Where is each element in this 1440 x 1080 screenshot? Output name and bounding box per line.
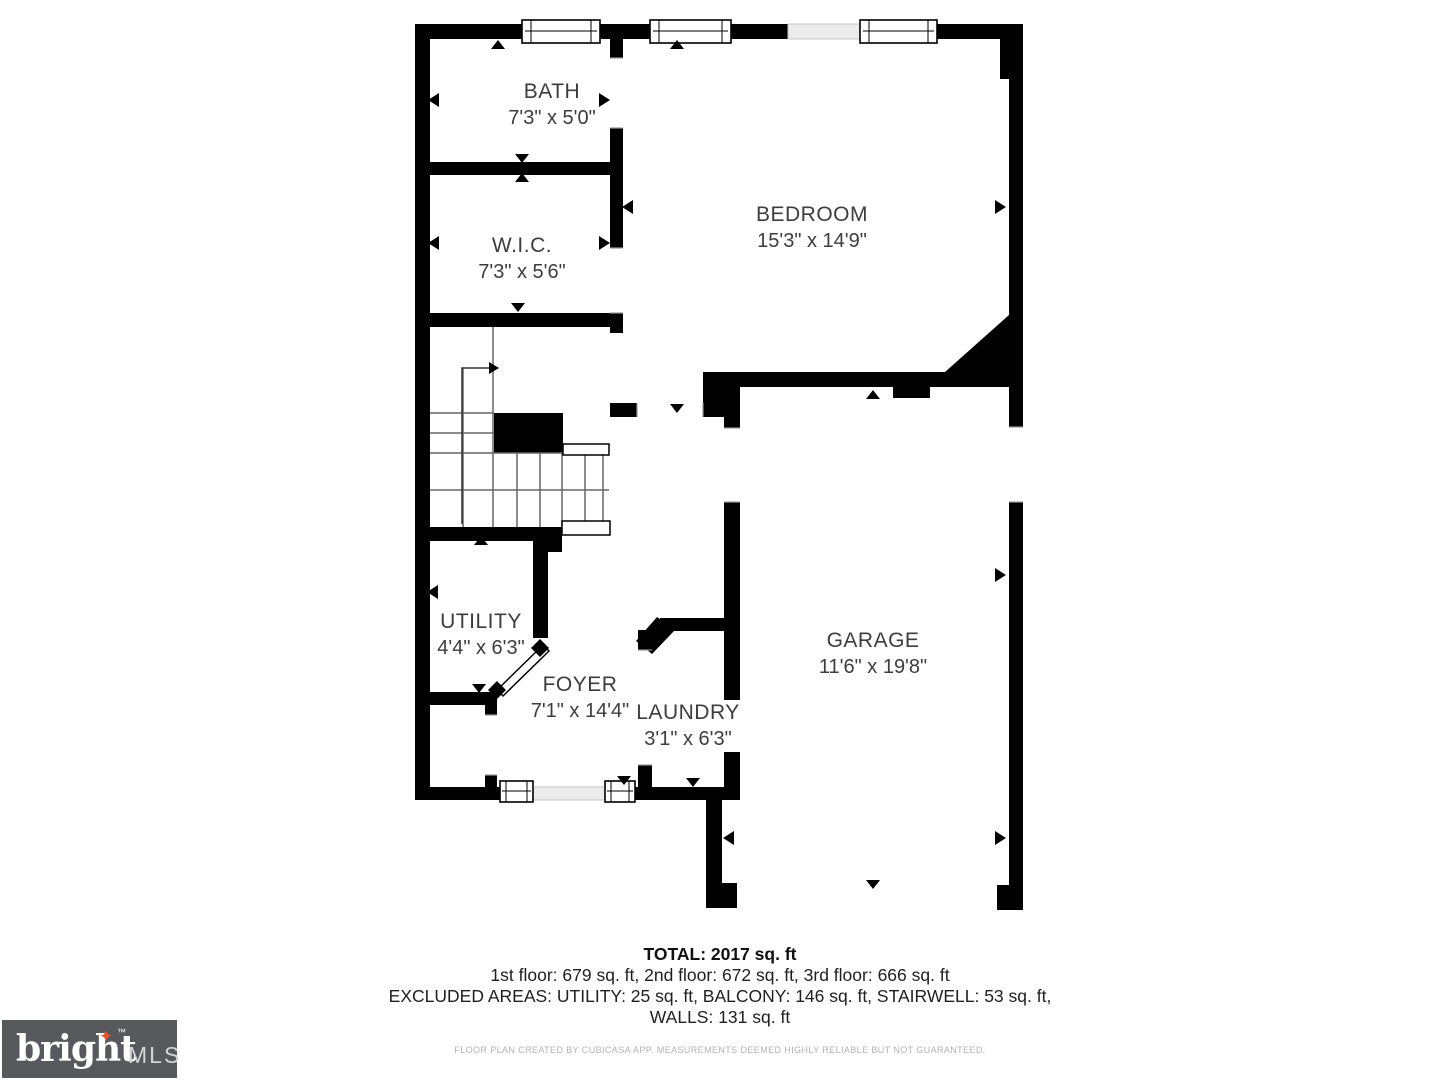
window (605, 781, 635, 802)
room-name: LAUNDRY (636, 700, 739, 726)
window (860, 20, 937, 43)
excluded-areas-line1: EXCLUDED AREAS: UTILITY: 25 sq. ft, BALC… (0, 986, 1440, 1007)
room-name: BEDROOM (756, 202, 868, 228)
exterior-walls (415, 24, 1023, 910)
star-icon: ✦ (99, 1028, 113, 1045)
room-dimensions: 7'1" x 14'4" (531, 698, 630, 724)
window (522, 20, 600, 43)
room-dimensions: 11'6" x 19'8" (819, 654, 927, 680)
floor-plan-page: BATH 7'3" x 5'0" W.I.C. 7'3" x 5'6" BEDR… (0, 0, 1440, 1080)
total-area: TOTAL: 2017 sq. ft (0, 944, 1440, 965)
room-name: BATH (508, 79, 595, 105)
room-dimensions: 3'1" x 6'3" (636, 726, 739, 752)
logo-suffix-text: MLS (128, 1042, 181, 1069)
room-name: W.I.C. (478, 233, 565, 259)
window (650, 20, 731, 43)
room-dimensions: 15'3" x 14'9" (756, 228, 868, 254)
disclaimer-text: FLOOR PLAN CREATED BY CUBICASA APP. MEAS… (0, 1045, 1440, 1055)
room-label-garage: GARAGE 11'6" x 19'8" (819, 628, 927, 680)
room-dimensions: 7'3" x 5'0" (508, 105, 595, 131)
room-dimensions: 4'4" x 6'3" (437, 635, 524, 661)
room-name: UTILITY (437, 609, 524, 635)
room-dimensions: 7'3" x 5'6" (478, 259, 565, 285)
area-summary: TOTAL: 2017 sq. ft 1st floor: 679 sq. ft… (0, 944, 1440, 1028)
room-label-utility: UTILITY 4'4" x 6'3" (437, 609, 524, 661)
window (500, 781, 533, 802)
room-label-bath: BATH 7'3" x 5'0" (508, 79, 595, 131)
room-label-wic: W.I.C. 7'3" x 5'6" (478, 233, 565, 285)
floor-plan-drawing (0, 0, 1440, 1080)
brightmls-logo: bright ✦ ™ MLS (2, 1020, 177, 1078)
floor-areas: 1st floor: 679 sq. ft, 2nd floor: 672 sq… (0, 965, 1440, 986)
room-label-laundry: LAUNDRY 3'1" x 6'3" (633, 700, 742, 752)
trademark-symbol: ™ (117, 1027, 126, 1037)
room-label-bedroom: BEDROOM 15'3" x 14'9" (756, 202, 868, 254)
room-name: FOYER (531, 672, 630, 698)
excluded-areas-line2: WALLS: 131 sq. ft (0, 1007, 1440, 1028)
room-label-foyer: FOYER 7'1" x 14'4" (531, 672, 630, 724)
room-name: GARAGE (819, 628, 927, 654)
